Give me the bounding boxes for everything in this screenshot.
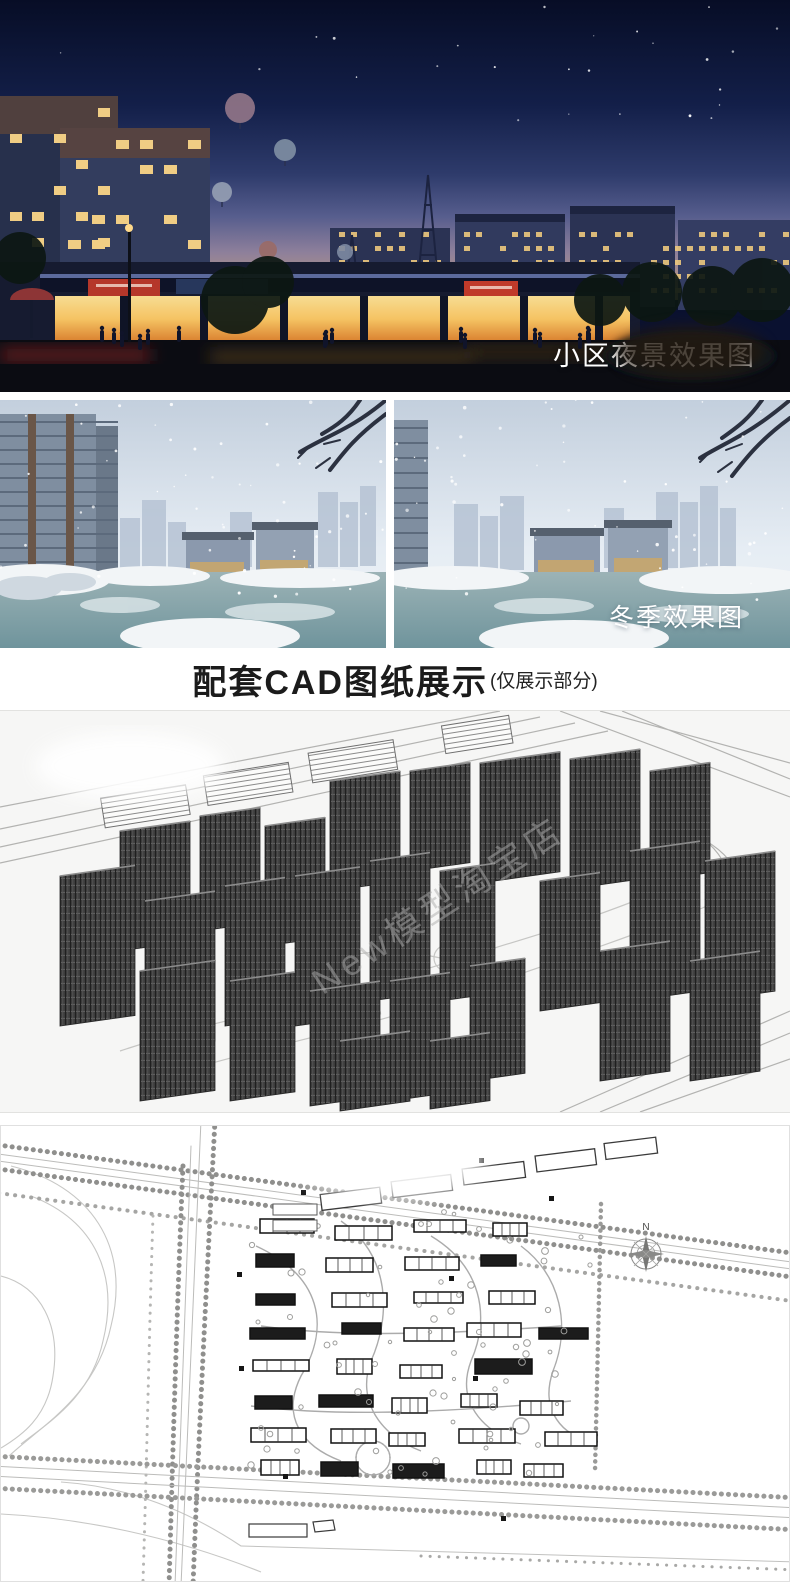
product-description-page: 小区夜景效果图 bbox=[0, 0, 790, 1582]
winter-render-caption: 冬季效果图 bbox=[609, 598, 744, 634]
cad-heading-title: 配套CAD图纸展示 bbox=[192, 655, 488, 704]
winter-render-right-image: 冬季效果图 bbox=[394, 400, 790, 648]
night-render-image: 小区夜景效果图 bbox=[0, 0, 790, 392]
winter-render-row: 冬季效果图 bbox=[0, 400, 790, 648]
compass-north-label: N bbox=[642, 1222, 649, 1233]
cad-section-heading: 配套CAD图纸展示 (仅展示部分) bbox=[0, 648, 790, 710]
foreground-car-blur bbox=[616, 326, 766, 378]
cad-site-plan-image: N ■■■■ 小区CAD总平面 bbox=[0, 1125, 790, 1582]
cad-heading-subtitle: (仅展示部分) bbox=[490, 666, 598, 693]
cad-3d-wireframe-image: New模型淘宝店 小区3维图形 bbox=[0, 710, 790, 1113]
shop-sign-red bbox=[88, 279, 160, 296]
winter-render-left-image bbox=[0, 400, 386, 648]
